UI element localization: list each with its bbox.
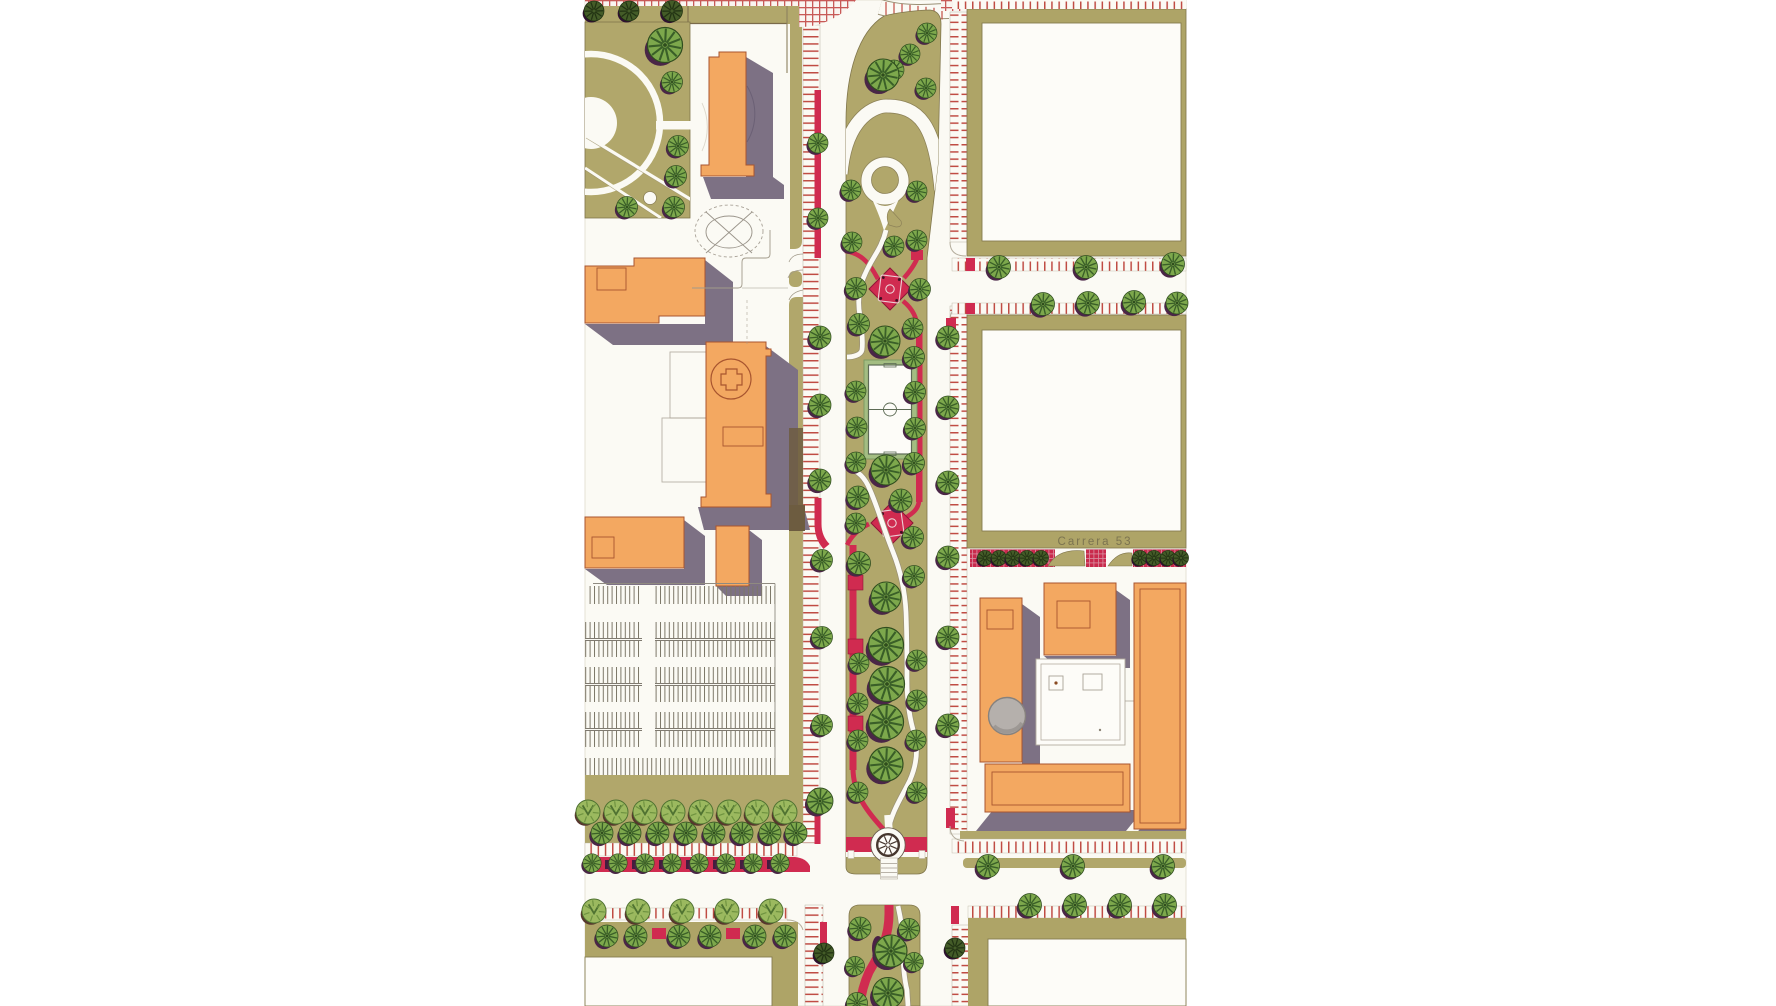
svg-text:Carrera 53: Carrera 53 xyxy=(1058,536,1133,548)
